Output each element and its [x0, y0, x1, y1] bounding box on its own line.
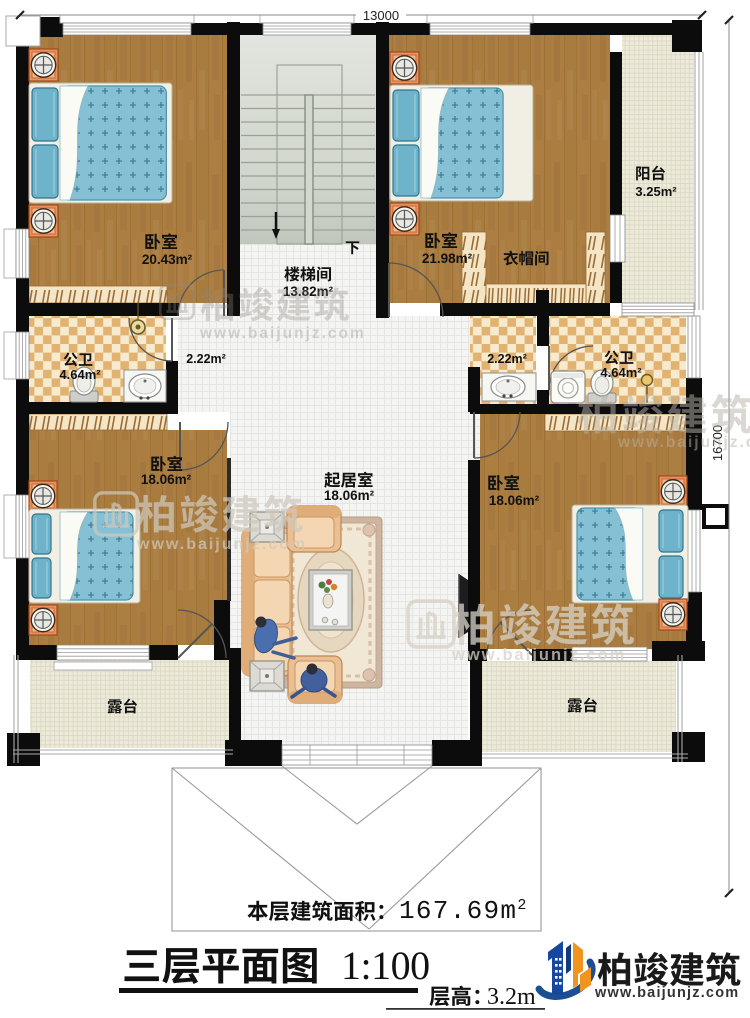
- svg-text:www.baijunjz.com: www.baijunjz.com: [451, 646, 626, 664]
- svg-text:www.baijunjz.com: www.baijunjz.com: [594, 985, 739, 1001]
- svg-text:www.baijunjz.com: www.baijunjz.com: [136, 536, 307, 553]
- svg-text:20.43m²: 20.43m²: [142, 252, 193, 267]
- svg-text:167.69m2: 167.69m2: [399, 896, 528, 926]
- svg-text:18.06m²: 18.06m²: [489, 493, 540, 508]
- svg-text:www.baijunjz.com: www.baijunjz.com: [617, 434, 750, 451]
- svg-text:4.64m²: 4.64m²: [600, 365, 642, 380]
- svg-text:21.98m²: 21.98m²: [422, 251, 473, 266]
- svg-text:1:100: 1:100: [341, 943, 430, 988]
- svg-text:www.baijunjz.com: www.baijunjz.com: [199, 325, 366, 342]
- svg-text:3.2m: 3.2m: [487, 984, 536, 1010]
- svg-text:13000: 13000: [363, 8, 399, 23]
- svg-text:2.22m²: 2.22m²: [487, 352, 527, 366]
- svg-text:3.25m²: 3.25m²: [635, 184, 677, 199]
- svg-text:18.06m²: 18.06m²: [141, 472, 192, 487]
- svg-text:4.64m²: 4.64m²: [59, 367, 101, 382]
- svg-text:18.06m²: 18.06m²: [324, 488, 375, 503]
- svg-text:2.22m²: 2.22m²: [186, 352, 226, 366]
